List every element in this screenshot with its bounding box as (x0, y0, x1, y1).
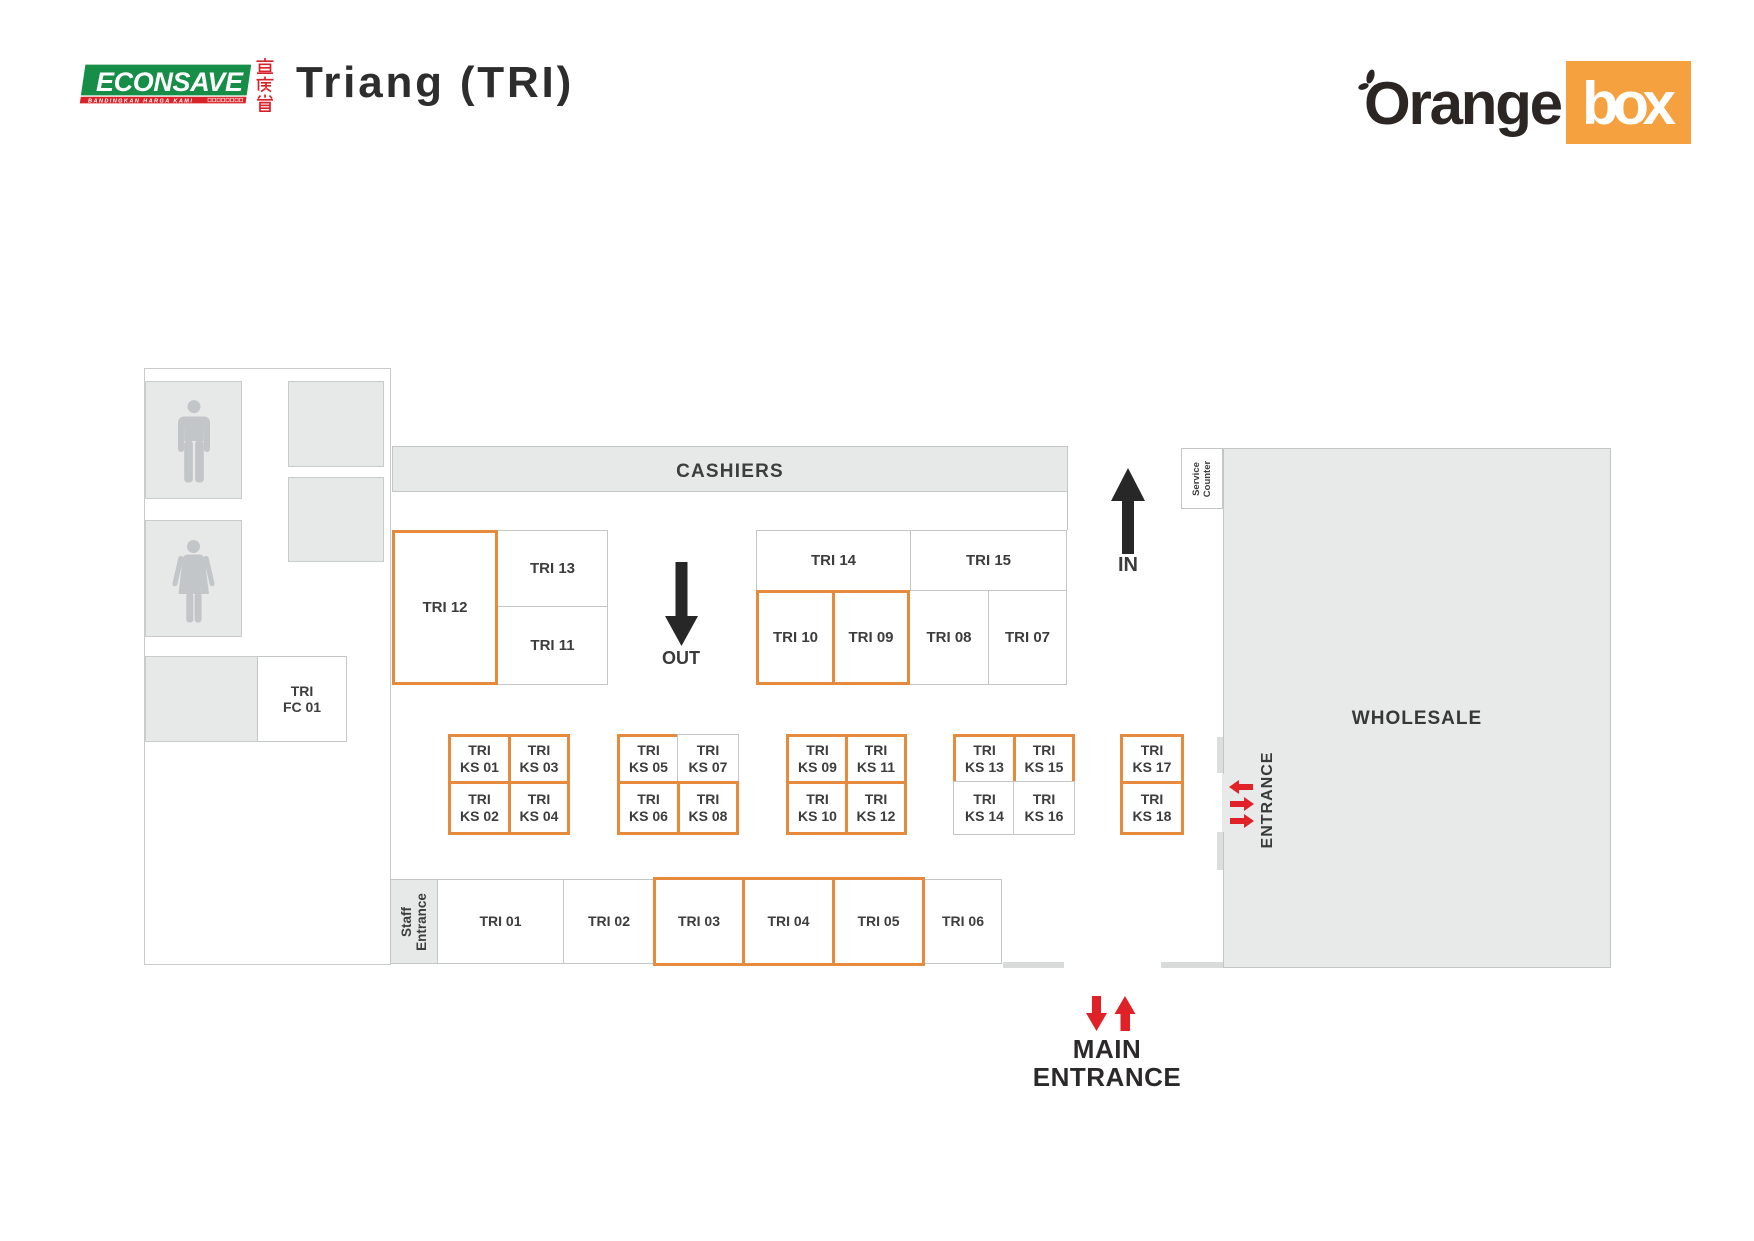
svg-text:ECONSAVE: ECONSAVE (96, 67, 244, 97)
svg-text:BANDINGKAN HARGA KAMI: BANDINGKAN HARGA KAMI (88, 98, 193, 104)
svg-text:Orange: Orange (1364, 70, 1563, 137)
svg-text:box: box (1582, 70, 1676, 137)
